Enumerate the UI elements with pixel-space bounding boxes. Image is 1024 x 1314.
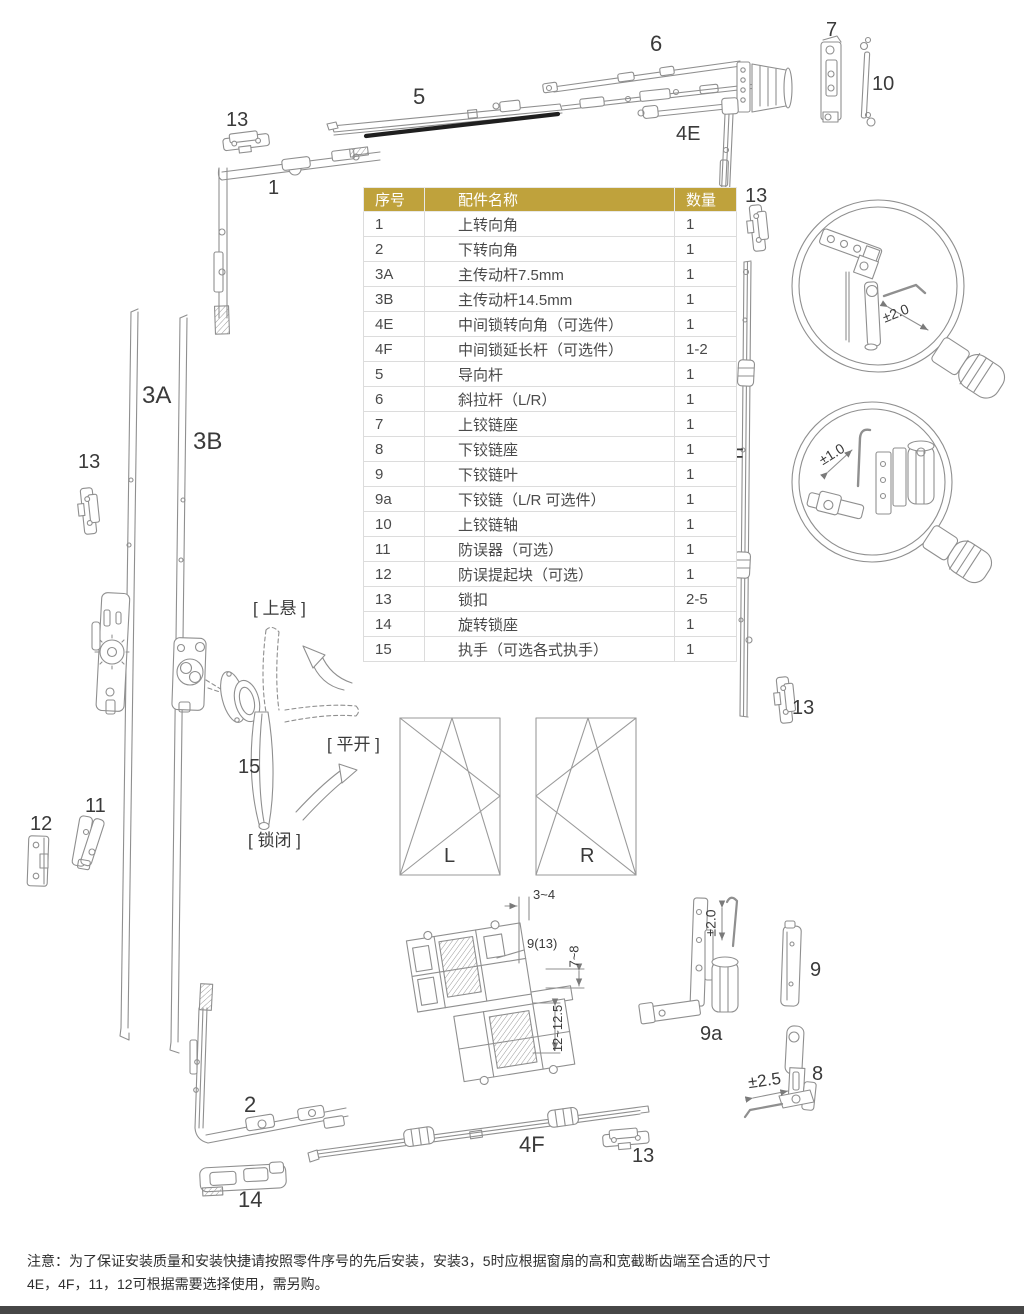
label-13-right-upper: 13 — [745, 186, 767, 206]
part-13-keeper — [745, 204, 770, 252]
table-cell: 上铰链轴 — [425, 512, 675, 537]
page: 13 1 5 6 4E 7 10 13 3A 3B 13 4F 13 [ 上悬 … — [0, 0, 1024, 1314]
table-cell: 9 — [364, 462, 425, 487]
part-11-mistake-preventer — [72, 815, 106, 870]
table-cell: 4F — [364, 337, 425, 362]
table-cell: 执手（可选各式执手） — [425, 637, 675, 662]
label-13-right-lower: 13 — [792, 698, 814, 718]
part-2-corner-drive — [190, 984, 348, 1143]
table-row: 10上铰链轴1 — [364, 512, 737, 537]
parts-table: 序号 配件名称 数量 1上转向角12下转向角13A主传动杆7.5mm13B主传动… — [363, 187, 737, 662]
table-cell: 1 — [675, 262, 737, 287]
table-cell: 3A — [364, 262, 425, 287]
dim-hinge-8: ±2.5 — [747, 1070, 782, 1091]
table-cell: 9a — [364, 487, 425, 512]
handle-arrow-turn — [296, 764, 357, 820]
table-cell: 斜拉杆（L/R） — [425, 387, 675, 412]
label-10: 10 — [872, 74, 894, 94]
table-row: 5导向杆1 — [364, 362, 737, 387]
table-cell: 1 — [675, 612, 737, 637]
table-cell: 1 — [675, 412, 737, 437]
table-cell: 下铰链座 — [425, 437, 675, 462]
table-cell: 1 — [675, 462, 737, 487]
table-cell: 下铰链（L/R 可选件） — [425, 487, 675, 512]
table-cell: 5 — [364, 362, 425, 387]
table-cell: 1-2 — [675, 337, 737, 362]
part-1-corner-drive — [214, 147, 380, 334]
table-row: 4F中间锁延长杆（可选件）1-2 — [364, 337, 737, 362]
label-window-right: R — [580, 846, 594, 866]
table-row: 7上铰链座1 — [364, 412, 737, 437]
table-cell: 旋转锁座 — [425, 612, 675, 637]
table-cell: 1 — [675, 562, 737, 587]
table-row: 9下铰链叶1 — [364, 462, 737, 487]
table-row: 14旋转锁座1 — [364, 612, 737, 637]
table-cell: 1 — [675, 212, 737, 237]
table-cell: 6 — [364, 387, 425, 412]
table-row: 4E中间锁转向角（可选件）1 — [364, 312, 737, 337]
part-3a-drive-bar — [92, 309, 138, 1040]
table-cell: 主传动杆7.5mm — [425, 262, 675, 287]
table-row: 9a下铰链（L/R 可选件）1 — [364, 487, 737, 512]
table-header-row: 序号 配件名称 数量 — [364, 188, 737, 212]
table-row: 6斜拉杆（L/R）1 — [364, 387, 737, 412]
table-cell: 1 — [675, 287, 737, 312]
column-header-quantity: 数量 — [675, 188, 737, 212]
table-row: 13锁扣2-5 — [364, 587, 737, 612]
dim-profile-right: 7~8 — [568, 945, 581, 967]
table-cell: 11 — [364, 537, 425, 562]
table-row: 8下铰链座1 — [364, 437, 737, 462]
table-cell: 13 — [364, 587, 425, 612]
page-edge-bar — [0, 1306, 1024, 1314]
table-cell: 1 — [675, 312, 737, 337]
handle-ghost-tilt — [263, 627, 279, 712]
table-cell: 8 — [364, 437, 425, 462]
label-9a: 9a — [700, 1024, 722, 1044]
part-12-lift-block — [27, 836, 49, 887]
table-row: 15执手（可选各式执手）1 — [364, 637, 737, 662]
part-6-diagonal-rod — [543, 61, 741, 93]
table-cell: 7 — [364, 412, 425, 437]
table-cell: 中间锁延长杆（可选件） — [425, 337, 675, 362]
table-cell: 中间锁转向角（可选件） — [425, 312, 675, 337]
table-cell: 14 — [364, 612, 425, 637]
label-4e: 4E — [676, 124, 700, 144]
note-line-1: 注意：为了保证安装质量和安装快捷请按照零件序号的先后安装，安装3，5时应根据窗扇… — [27, 1251, 771, 1271]
table-cell: 1 — [675, 487, 737, 512]
label-5: 5 — [413, 86, 425, 108]
part-7-hinge-seat — [821, 36, 841, 122]
note-line-2: 4E，4F，11，12可根据需要选择使用，需另购。 — [27, 1274, 329, 1294]
dim-profile-screw: 9(13) — [527, 937, 557, 950]
table-cell: 1 — [675, 637, 737, 662]
table-cell: 防误提起块（可选） — [425, 562, 675, 587]
part-15-handle — [208, 627, 359, 829]
table-cell: 下铰链叶 — [425, 462, 675, 487]
dim-hinge-9a: ±2.0 — [704, 909, 718, 936]
table-cell: 主传动杆14.5mm — [425, 287, 675, 312]
label-3a: 3A — [142, 384, 171, 408]
label-window-left: L — [444, 846, 455, 866]
label-2: 2 — [244, 1094, 256, 1116]
table-cell: 下转向角 — [425, 237, 675, 262]
table-cell: 锁扣 — [425, 587, 675, 612]
table-cell: 1 — [364, 212, 425, 237]
magnifier-bottom — [792, 402, 997, 588]
table-row: 1上转向角1 — [364, 212, 737, 237]
table-cell: 1 — [675, 537, 737, 562]
label-13-bottom: 13 — [632, 1146, 654, 1166]
label-handle-tilt: [ 上悬 ] — [253, 600, 306, 617]
table-cell: 1 — [675, 437, 737, 462]
handle-arrow-tilt — [303, 646, 352, 690]
part-4f-bottom-bar — [308, 1106, 649, 1162]
profile-cross-section — [405, 897, 584, 1093]
table-cell: 2-5 — [675, 587, 737, 612]
table-cell: 10 — [364, 512, 425, 537]
table-cell: 1 — [675, 362, 737, 387]
label-13-left: 13 — [78, 452, 100, 472]
handle-ghost-turn — [285, 705, 359, 722]
table-row: 3B主传动杆14.5mm1 — [364, 287, 737, 312]
label-7: 7 — [826, 20, 837, 40]
table-cell: 防误器（可选） — [425, 537, 675, 562]
table-cell: 15 — [364, 637, 425, 662]
dim-profile-top-gap: 3~4 — [533, 888, 555, 901]
table-row: 11防误器（可选）1 — [364, 537, 737, 562]
column-header-part-name: 配件名称 — [425, 188, 675, 212]
label-12: 12 — [30, 814, 52, 834]
table-cell: 1 — [675, 512, 737, 537]
table-row: 2下转向角1 — [364, 237, 737, 262]
label-3b: 3B — [193, 430, 222, 454]
table-cell: 1 — [675, 387, 737, 412]
label-13-top-left: 13 — [226, 110, 248, 130]
table-cell: 1 — [675, 237, 737, 262]
label-14: 14 — [238, 1189, 262, 1211]
top-hinge-corner-block — [737, 62, 792, 112]
table-cell: 上铰链座 — [425, 412, 675, 437]
label-handle-locked: [ 锁闭 ] — [248, 832, 301, 849]
table-row: 3A主传动杆7.5mm1 — [364, 262, 737, 287]
table-cell: 2 — [364, 237, 425, 262]
table-row: 12防误提起块（可选）1 — [364, 562, 737, 587]
part-13-keeper — [76, 487, 101, 535]
label-1: 1 — [268, 178, 279, 198]
table-cell: 上转向角 — [425, 212, 675, 237]
label-15: 15 — [238, 757, 260, 777]
part-9a-bottom-hinge — [639, 898, 738, 1024]
part-13-keeper — [222, 129, 270, 154]
label-6: 6 — [650, 33, 662, 55]
label-11: 11 — [85, 796, 106, 816]
table-cell: 12 — [364, 562, 425, 587]
table-cell: 导向杆 — [425, 362, 675, 387]
table-cell: 4E — [364, 312, 425, 337]
label-9: 9 — [810, 960, 821, 980]
parts-table-body: 1上转向角12下转向角13A主传动杆7.5mm13B主传动杆14.5mm14E中… — [364, 212, 737, 662]
column-header-index: 序号 — [364, 188, 425, 212]
label-4f-bottom: 4F — [519, 1134, 545, 1156]
label-8: 8 — [812, 1064, 823, 1084]
label-handle-turn: [ 平开 ] — [327, 736, 380, 753]
dim-profile-lower: 12~12.5 — [551, 1005, 564, 1052]
table-cell: 3B — [364, 287, 425, 312]
part-9-hinge-leaf — [781, 921, 802, 1006]
